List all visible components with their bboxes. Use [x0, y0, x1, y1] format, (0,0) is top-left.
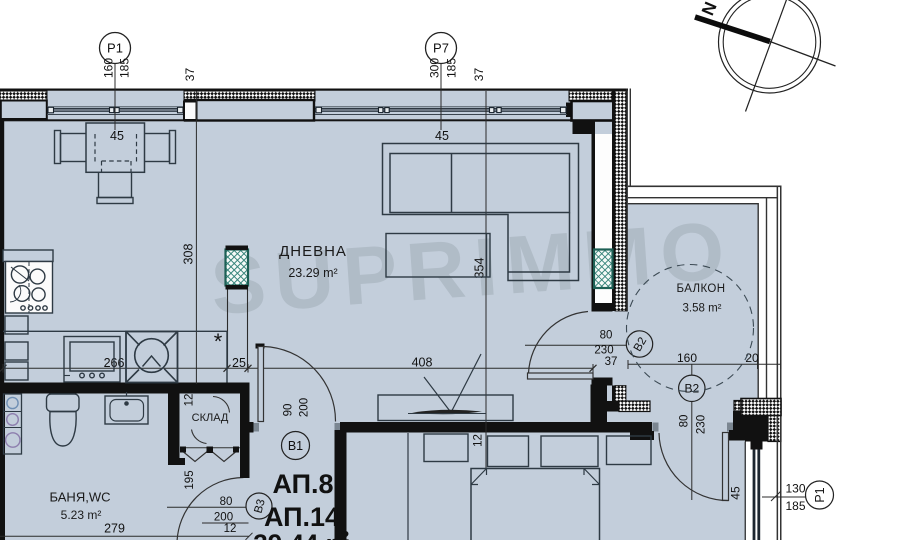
svg-text:БАНЯ,WC: БАНЯ,WC — [50, 490, 111, 505]
svg-text:408: 408 — [412, 356, 433, 370]
svg-text:12: 12 — [224, 523, 237, 535]
svg-text:25: 25 — [232, 356, 246, 370]
svg-text:B2: B2 — [684, 382, 699, 396]
svg-text:160: 160 — [102, 58, 116, 78]
svg-text:200: 200 — [299, 398, 311, 417]
svg-text:ДНЕВНА: ДНЕВНА — [279, 243, 347, 260]
svg-text:B1: B1 — [288, 439, 303, 453]
svg-text:130: 130 — [785, 482, 805, 496]
svg-text:12: 12 — [184, 394, 196, 407]
svg-text:354: 354 — [473, 258, 487, 279]
svg-text:БАЛКОН: БАЛКОН — [677, 283, 726, 295]
svg-text:90: 90 — [283, 404, 295, 417]
svg-text:160: 160 — [677, 351, 697, 365]
svg-text:P1: P1 — [813, 487, 827, 502]
svg-text:80: 80 — [679, 415, 691, 428]
svg-text:185: 185 — [785, 499, 805, 513]
svg-text:45: 45 — [435, 129, 449, 143]
svg-text:300: 300 — [428, 58, 442, 78]
svg-text:АП.8: АП.8 — [272, 469, 333, 499]
svg-text:45: 45 — [729, 486, 743, 500]
svg-text:АП.14: АП.14 — [264, 502, 340, 532]
svg-text:P1: P1 — [107, 41, 123, 56]
svg-text:23.29 m²: 23.29 m² — [288, 266, 337, 280]
svg-text:*: * — [214, 329, 223, 354]
svg-text:20: 20 — [745, 351, 759, 365]
svg-text:12: 12 — [473, 434, 485, 447]
svg-text:308: 308 — [182, 244, 196, 265]
svg-text:185: 185 — [445, 58, 459, 78]
svg-text:200: 200 — [214, 512, 233, 524]
svg-text:80: 80 — [220, 496, 233, 508]
svg-text:5.23 m²: 5.23 m² — [61, 508, 102, 522]
svg-text:80: 80 — [600, 330, 613, 342]
svg-text:279: 279 — [104, 522, 125, 536]
svg-text:185: 185 — [118, 58, 132, 78]
svg-text:СКЛАД: СКЛАД — [192, 412, 229, 424]
svg-text:P7: P7 — [433, 41, 449, 56]
svg-text:39.44 m: 39.44 m — [253, 529, 348, 540]
svg-text:195: 195 — [184, 470, 196, 489]
svg-text:230: 230 — [594, 345, 613, 357]
svg-text:37: 37 — [605, 356, 618, 368]
svg-text:230: 230 — [696, 415, 708, 434]
svg-text:2: 2 — [341, 528, 349, 540]
svg-text:37: 37 — [183, 68, 197, 82]
svg-text:45: 45 — [110, 129, 124, 143]
svg-text:37: 37 — [472, 68, 486, 82]
svg-text:3.58 m²: 3.58 m² — [683, 303, 722, 315]
